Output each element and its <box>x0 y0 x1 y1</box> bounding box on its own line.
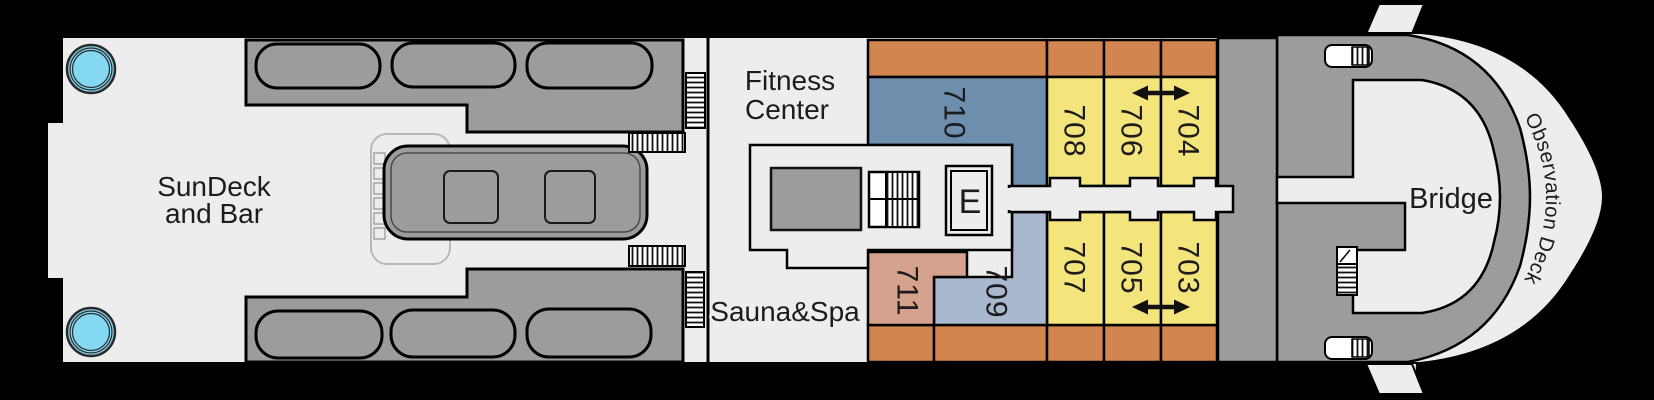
cabin-709-number: 709 <box>980 265 1013 318</box>
cabin-706-number: 706 <box>1115 104 1148 157</box>
sauna-spa-label: Sauna&Spa <box>710 296 860 327</box>
elevator: E <box>946 166 992 235</box>
deck-plan-svg: 710 708 706 704 707 705 703 709 711 <box>0 0 1654 400</box>
stairs-icon <box>1337 247 1357 295</box>
stairs-icon <box>629 133 685 152</box>
fitness-center-label-line1: Fitness <box>745 65 835 96</box>
cabin-710-number: 710 <box>938 86 971 139</box>
cabin-708-number: 708 <box>1058 104 1091 157</box>
elevator-glyph: E <box>959 183 982 221</box>
mooring-winch-icon <box>1325 337 1372 359</box>
stairs-icon <box>686 73 705 128</box>
cabin-704-number: 704 <box>1172 104 1205 157</box>
cabin-703-number: 703 <box>1172 241 1205 294</box>
deck-plan: 710 708 706 704 707 705 703 709 711 <box>0 0 1654 400</box>
lounge-sofa <box>256 311 382 358</box>
lounge-sofa <box>392 43 515 87</box>
fitness-center-label-line2: Center <box>745 94 829 125</box>
stairs-icon <box>869 172 919 227</box>
hot-tub <box>67 308 115 356</box>
cabin-711-number: 711 <box>891 266 924 317</box>
cabin-708[interactable]: 708 <box>1047 77 1104 186</box>
cabin-707[interactable]: 707 <box>1047 212 1104 325</box>
stairs-icon <box>686 272 704 327</box>
sundeck-label-line2: and Bar <box>165 198 263 229</box>
corridor-opening <box>1005 188 1017 210</box>
bridge-label: Bridge <box>1409 183 1493 215</box>
hot-tub <box>67 45 115 93</box>
mooring-winch-icon <box>1325 45 1372 67</box>
cabin-705-number: 705 <box>1115 241 1148 294</box>
lounge-sofa <box>527 43 652 88</box>
stairs-icon <box>629 246 685 266</box>
lounge-sofa <box>256 44 380 88</box>
lounge-sofa <box>527 309 651 357</box>
cabin-707-number: 707 <box>1058 241 1091 294</box>
sauna-room <box>771 168 861 230</box>
lounge-sofa <box>391 310 515 357</box>
